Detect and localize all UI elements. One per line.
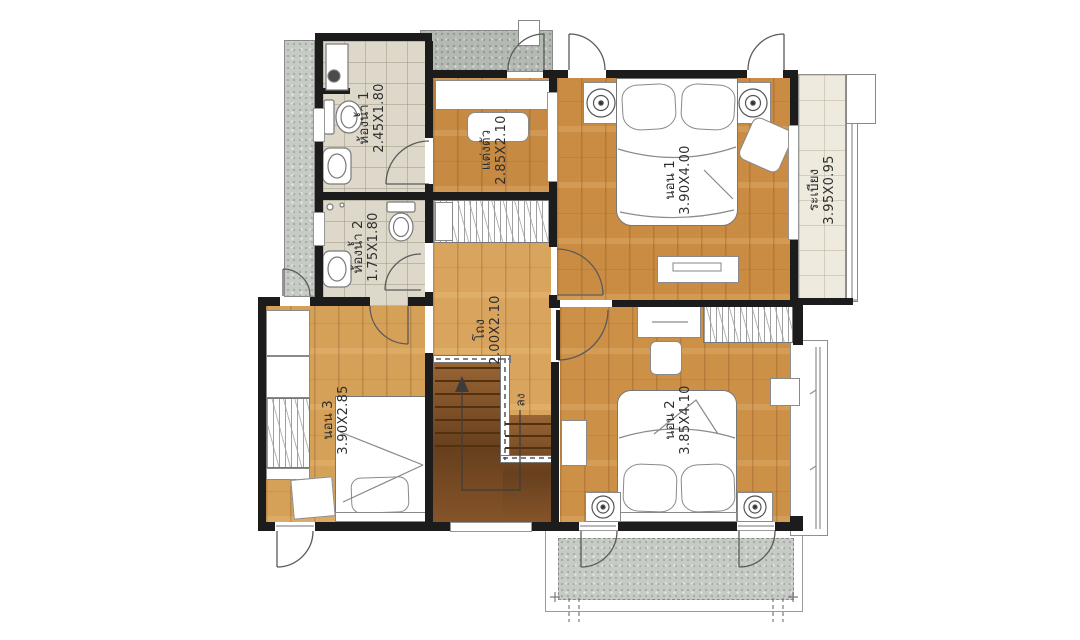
sliding-window: [788, 125, 799, 240]
wall-segment: [790, 298, 853, 305]
balcony-floor: [798, 74, 846, 302]
wall-segment: [315, 41, 323, 306]
roof-vent: [518, 20, 540, 46]
pillow: [350, 476, 409, 514]
desk-bedroom2: [637, 305, 701, 338]
wall-segment: [790, 516, 803, 531]
chair-bedroom2: [561, 420, 587, 466]
wall-segment: [258, 297, 266, 531]
door-arc: [569, 34, 605, 70]
wall-segment: [315, 522, 450, 531]
window: [547, 92, 558, 182]
floor-plan: ห้องน้ำ 1 2.45X1.80 ห้องน้ำ 2 1.75X1.80 …: [0, 0, 1080, 640]
terrace-floor: [558, 538, 794, 600]
bench-bedroom1: [657, 256, 739, 283]
dressing-counter: [435, 80, 551, 110]
stairs-flight-right: [503, 415, 553, 522]
wall-segment: [408, 297, 433, 306]
wall-segment: [258, 522, 275, 531]
shower-partition: [322, 88, 350, 94]
nightstand: [585, 492, 621, 522]
wall-segment: [549, 70, 557, 92]
headboard-bedroom2: [617, 512, 737, 522]
stairs-flight-left: [433, 360, 503, 522]
wall-segment: [433, 70, 507, 78]
wall-segment: [532, 522, 579, 531]
pillow: [622, 463, 678, 513]
wall-segment: [425, 353, 433, 522]
door-arc: [277, 531, 313, 567]
wall-segment: [790, 240, 798, 305]
window: [450, 522, 532, 532]
wardrobe-bedroom3-hanging: [266, 398, 310, 468]
wall-segment: [790, 70, 798, 125]
nightstand: [583, 82, 619, 124]
nightstand: [735, 82, 771, 124]
wall-segment: [551, 362, 559, 522]
wardrobe-bedroom2: [703, 303, 793, 343]
bathroom2-floor: [323, 200, 425, 306]
hall-closet-shelf: [435, 202, 453, 241]
bathroom1-floor: [323, 41, 425, 192]
bay-window: [790, 340, 828, 536]
side-table-bedroom3: [290, 476, 335, 520]
pillow: [680, 463, 736, 513]
headboard-bedroom3: [335, 512, 432, 522]
wall-segment: [315, 33, 432, 41]
stool-bedroom2: [650, 341, 682, 375]
stair-railing: [500, 355, 510, 463]
dressing-bench: [467, 112, 529, 142]
wall-segment: [315, 192, 553, 200]
wall-segment: [425, 41, 433, 138]
stair-railing: [500, 455, 553, 463]
door-arc: [748, 34, 784, 70]
wall-segment: [612, 300, 803, 307]
pillow: [680, 83, 736, 132]
service-ledge-floor: [284, 40, 315, 297]
window: [313, 212, 325, 246]
wall-segment: [618, 522, 737, 531]
wall-segment: [310, 297, 370, 306]
wall-segment: [549, 182, 557, 247]
wall-segment: [793, 305, 803, 345]
wall-segment: [549, 300, 560, 308]
wall-segment: [606, 70, 747, 78]
wardrobe-bedroom3-top: [266, 310, 310, 356]
pillow: [621, 83, 677, 132]
wardrobe-bedroom3-mid: [266, 356, 310, 398]
ac-unit: [846, 74, 876, 124]
side-table-bedroom2: [770, 378, 800, 406]
nightstand: [737, 492, 773, 522]
window: [313, 108, 325, 142]
